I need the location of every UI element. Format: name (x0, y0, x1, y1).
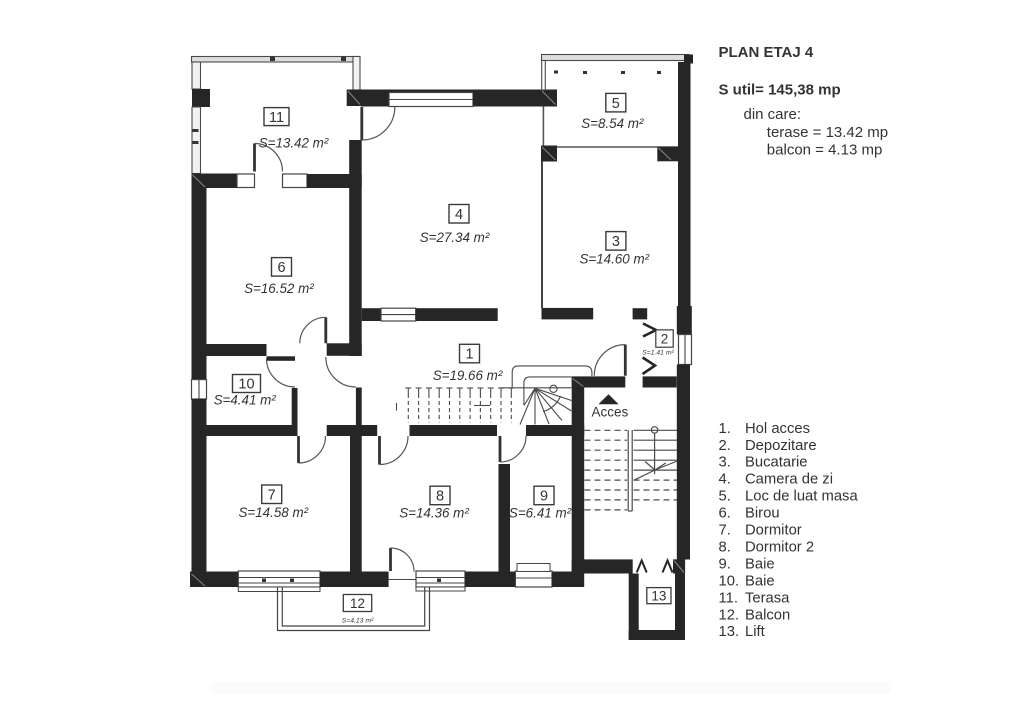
svg-text:8: 8 (436, 489, 444, 505)
svg-text:7.: 7. (719, 523, 731, 539)
svg-text:S=14.58 m²: S=14.58 m² (238, 505, 308, 520)
svg-text:Lift: Lift (745, 624, 765, 640)
svg-text:Balcon: Balcon (745, 607, 790, 623)
svg-text:1: 1 (465, 347, 473, 363)
svg-text:3.: 3. (719, 455, 731, 471)
svg-text:balcon = 4.13 mp: balcon = 4.13 mp (767, 142, 883, 159)
svg-text:Acces: Acces (592, 405, 629, 420)
svg-text:4: 4 (455, 207, 463, 223)
svg-text:S=16.52 m²: S=16.52 m² (244, 281, 314, 296)
svg-text:Baie: Baie (745, 573, 775, 589)
svg-text:6.: 6. (719, 506, 731, 522)
svg-text:8.: 8. (719, 540, 731, 556)
svg-text:S util= 145,38 mp: S util= 145,38 mp (719, 82, 841, 99)
svg-text:3: 3 (612, 234, 620, 250)
svg-text:7: 7 (268, 487, 276, 503)
svg-text:10.: 10. (719, 573, 740, 589)
svg-text:9.: 9. (719, 556, 731, 572)
svg-text:Camera de zi: Camera de zi (745, 472, 833, 488)
svg-text:12: 12 (350, 596, 365, 611)
svg-text:S=6.41 m²: S=6.41 m² (509, 506, 572, 521)
svg-text:2: 2 (661, 331, 669, 346)
svg-text:Dormitor 2: Dormitor 2 (745, 540, 814, 556)
svg-text:11: 11 (269, 110, 284, 126)
svg-text:PLAN ETAJ 4: PLAN ETAJ 4 (719, 44, 814, 61)
svg-text:4.: 4. (719, 472, 731, 488)
svg-text:13.: 13. (719, 624, 740, 640)
svg-text:S=14.36 m²: S=14.36 m² (399, 506, 469, 521)
svg-text:5.: 5. (719, 489, 731, 505)
svg-text:12.: 12. (719, 607, 740, 623)
svg-text:S=8.54 m²: S=8.54 m² (581, 116, 644, 131)
svg-text:terase = 13.42 mp: terase = 13.42 mp (767, 124, 888, 141)
svg-text:6: 6 (277, 260, 285, 276)
svg-text:Birou: Birou (745, 506, 780, 522)
svg-text:S=27.34 m²: S=27.34 m² (420, 230, 490, 245)
svg-text:S=14.60 m²: S=14.60 m² (579, 252, 649, 267)
svg-text:Dormitor: Dormitor (745, 523, 802, 539)
svg-text:S=4.41 m²: S=4.41 m² (214, 393, 277, 408)
svg-text:Terasa: Terasa (745, 590, 790, 606)
svg-text:Depozitare: Depozitare (745, 438, 817, 454)
svg-text:9: 9 (540, 489, 548, 505)
svg-text:S=19.66 m²: S=19.66 m² (433, 368, 503, 383)
svg-text:11.: 11. (719, 590, 738, 606)
svg-text:Baie: Baie (745, 556, 775, 572)
svg-text:10: 10 (238, 377, 254, 393)
svg-text:1.: 1. (719, 421, 731, 437)
svg-text:S=4.13 m²: S=4.13 m² (342, 618, 374, 625)
svg-text:S=13.42 m²: S=13.42 m² (259, 135, 329, 150)
svg-text:Loc de luat masa: Loc de luat masa (745, 489, 858, 505)
svg-text:Bucatarie: Bucatarie (745, 455, 808, 471)
svg-text:13: 13 (651, 588, 666, 603)
svg-text:din care:: din care: (744, 106, 802, 123)
svg-text:5: 5 (612, 96, 620, 112)
svg-text:Hol acces: Hol acces (745, 421, 810, 437)
svg-text:2.: 2. (719, 438, 731, 454)
svg-text:S=1.41 m²: S=1.41 m² (642, 350, 674, 357)
